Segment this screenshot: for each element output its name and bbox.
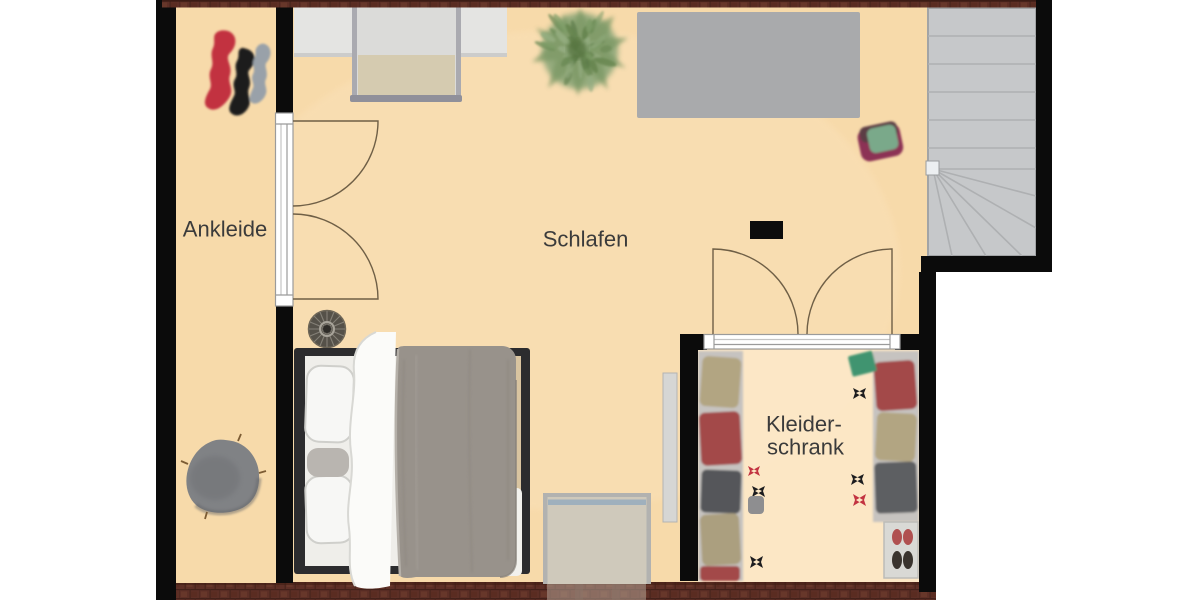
svg-text:Schlafen: Schlafen (543, 227, 629, 252)
svg-text:schrank: schrank (767, 435, 845, 460)
svg-text:Ankleide: Ankleide (183, 217, 267, 242)
svg-text:Kleider-: Kleider- (766, 412, 842, 437)
